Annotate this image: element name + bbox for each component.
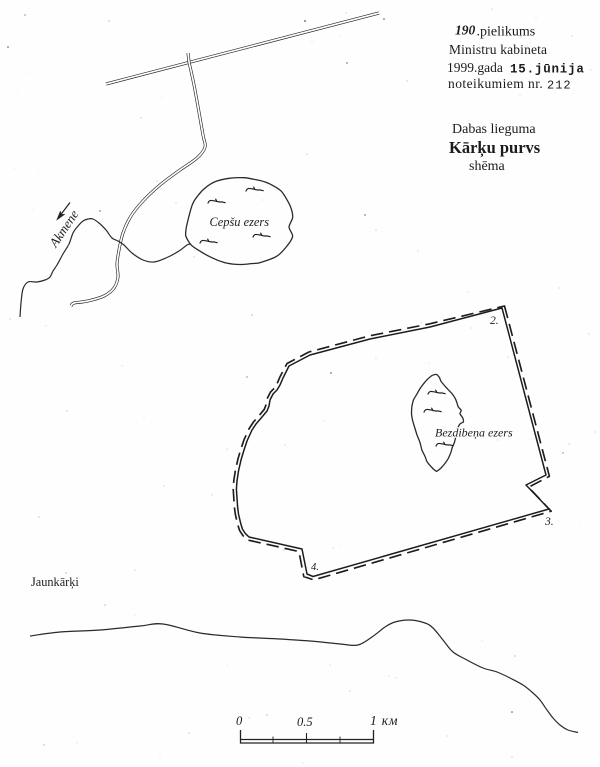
- svg-text:4.: 4.: [311, 562, 319, 573]
- svg-text:1999.gada: 1999.gada: [447, 60, 503, 75]
- svg-text:Bezdibeņa ezers: Bezdibeņa ezers: [435, 426, 513, 440]
- svg-text:Cepšu ezers: Cepšu ezers: [210, 215, 270, 229]
- svg-text:0.5: 0.5: [297, 715, 313, 729]
- svg-text:3.: 3.: [544, 516, 554, 528]
- svg-text:190: 190: [455, 23, 476, 38]
- svg-text:.pielikums: .pielikums: [477, 25, 536, 40]
- svg-text:2.: 2.: [490, 315, 499, 327]
- svg-text:1 км: 1 км: [370, 713, 398, 728]
- svg-text:212: 212: [547, 79, 572, 93]
- svg-text:shēma: shēma: [469, 159, 506, 174]
- svg-text:Kārķu purvs: Kārķu purvs: [449, 138, 541, 158]
- svg-text:Ministru kabineta: Ministru kabineta: [449, 42, 547, 57]
- svg-text:noteikumiem nr.: noteikumiem nr.: [448, 76, 543, 91]
- svg-text:Dabas lieguma: Dabas lieguma: [452, 122, 536, 137]
- svg-text:0: 0: [236, 714, 243, 728]
- svg-text:15.jūnija: 15.jūnija: [510, 63, 585, 77]
- svg-text:Jaunkārķi: Jaunkārķi: [31, 575, 79, 589]
